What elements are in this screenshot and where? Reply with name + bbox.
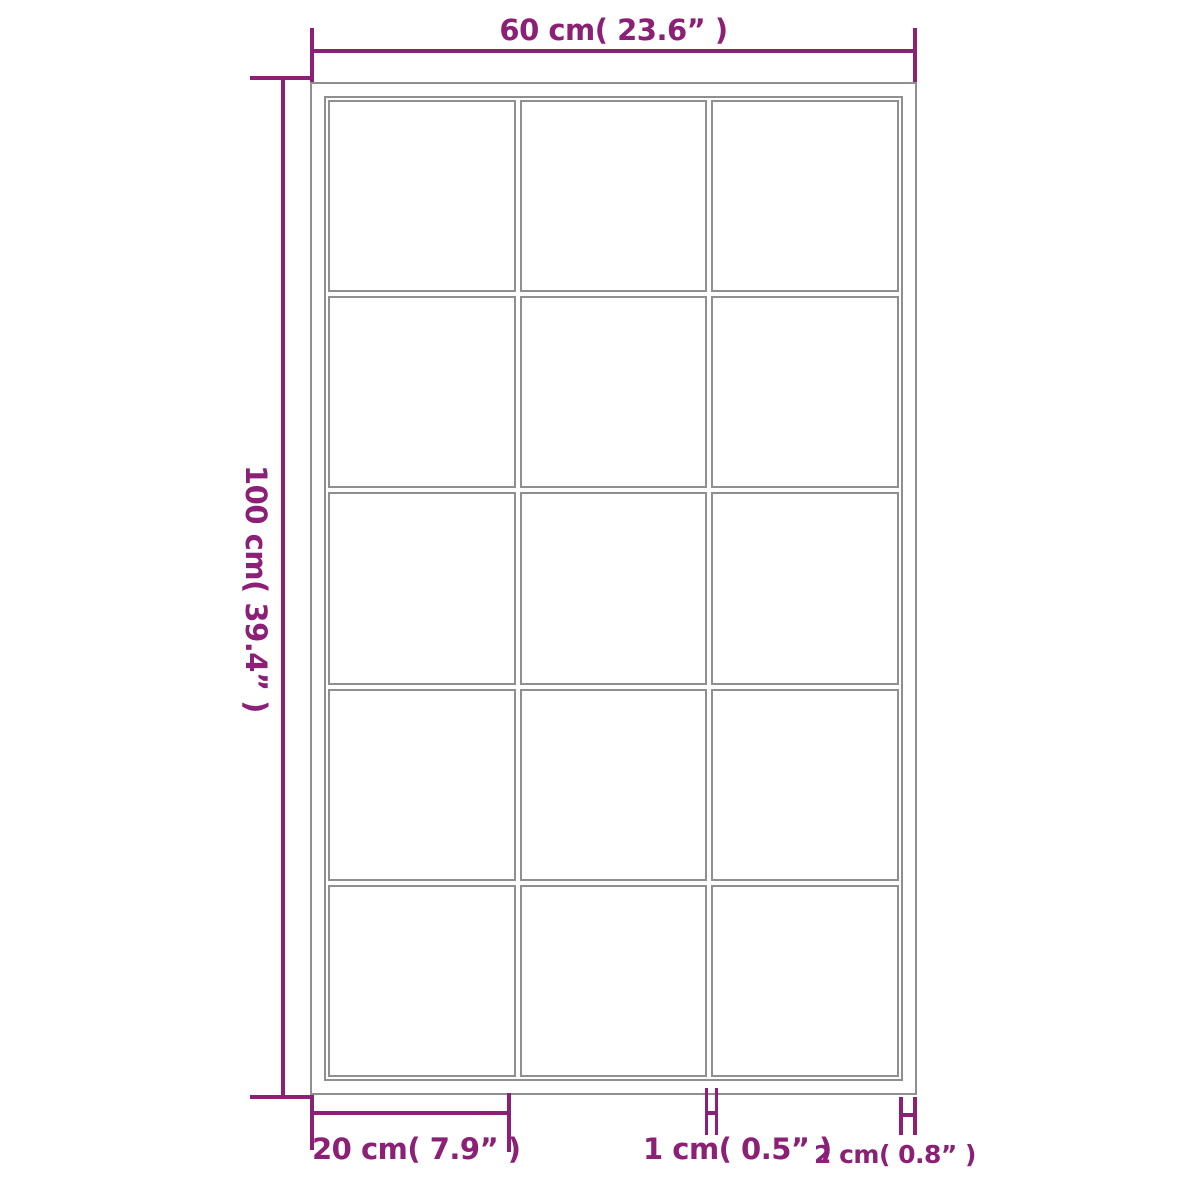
- width-dimension-label: 60 cm( 23.6” ): [310, 13, 917, 47]
- pane-grid: [324, 96, 903, 1081]
- window-pane: [711, 885, 899, 1077]
- window-pane: [711, 492, 899, 684]
- window-pane: [711, 100, 899, 292]
- window-pane: [711, 296, 899, 488]
- pane-dimension-label: 20 cm( 7.9” ): [312, 1132, 509, 1166]
- height-dimension-label-wrap: 100 cm( 39.4” ): [236, 82, 276, 1095]
- height-dimension-tick-top: [250, 76, 314, 80]
- window-pane: [328, 492, 516, 684]
- pane-dimension-line: [312, 1111, 509, 1115]
- window-pane: [520, 492, 708, 684]
- height-dimension-tick-bottom: [250, 1095, 314, 1099]
- window-pane: [328, 296, 516, 488]
- window-pane: [711, 689, 899, 881]
- window-pane: [520, 296, 708, 488]
- width-dimension-line: [310, 49, 917, 53]
- frame-dimension-line: [899, 1113, 917, 1117]
- window-pane: [520, 100, 708, 292]
- height-dimension-label: 100 cm( 39.4” ): [239, 465, 273, 713]
- window-pane: [328, 689, 516, 881]
- width-dimension-tick-left: [310, 28, 314, 82]
- window-pane: [520, 689, 708, 881]
- muntin-dimension-label: 1 cm( 0.5” ): [643, 1132, 793, 1166]
- muntin-dimension-line: [705, 1111, 718, 1115]
- window-pane: [328, 100, 516, 292]
- window-pane: [328, 885, 516, 1077]
- width-dimension-tick-right: [913, 28, 917, 82]
- dimension-diagram: 60 cm( 23.6” ) 100 cm( 39.4” ) 20 cm( 7.…: [0, 0, 1200, 1200]
- height-dimension-line: [281, 78, 285, 1097]
- frame-dimension-label: 2 cm( 0.8” ): [814, 1140, 964, 1169]
- window-pane: [520, 885, 708, 1077]
